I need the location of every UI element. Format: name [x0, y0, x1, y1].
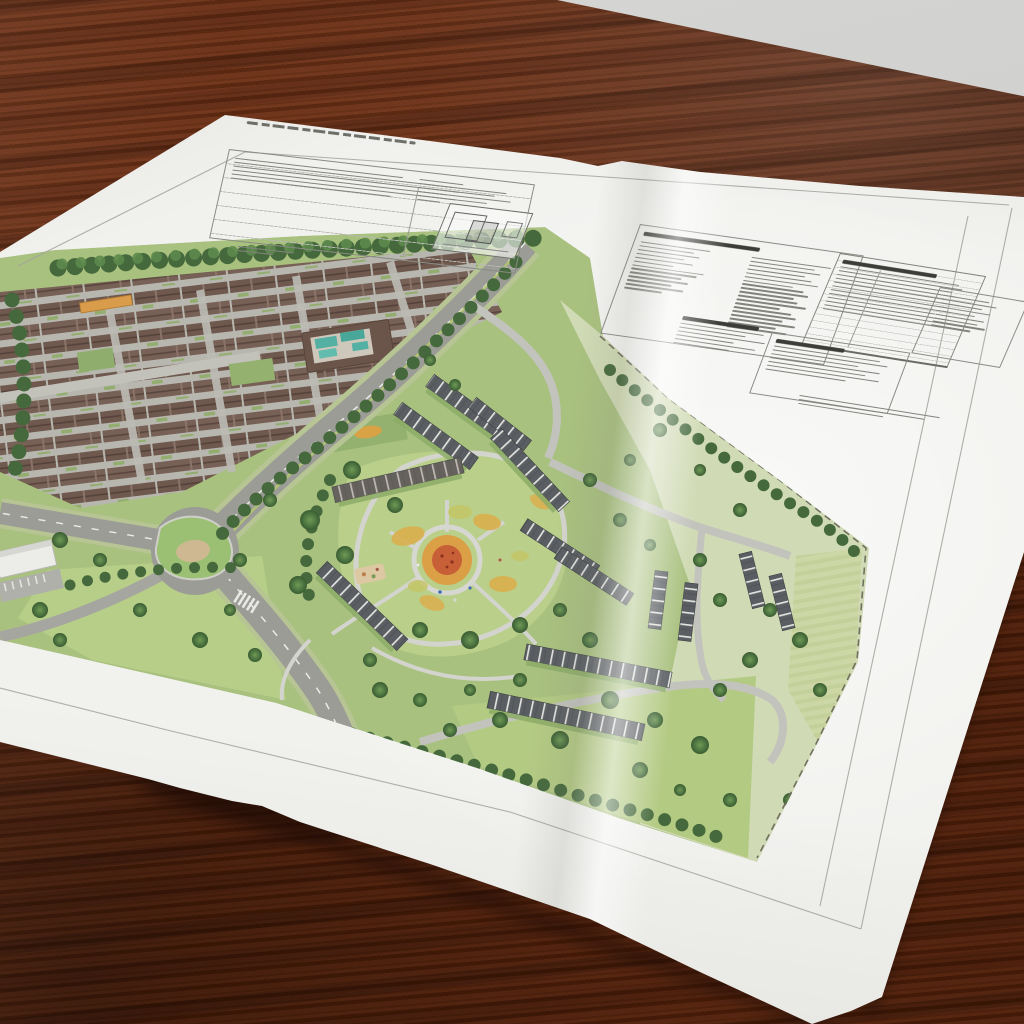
- keyplan-block: [501, 221, 523, 238]
- roundabout: [156, 517, 232, 584]
- legend-column-a: [615, 238, 741, 327]
- key-plan-inset: [431, 203, 533, 259]
- mini-notes: [417, 176, 468, 208]
- notes-b-lines: [765, 345, 899, 388]
- keyplan-baseline: [443, 244, 509, 253]
- photo-scene: [0, 0, 1024, 1024]
